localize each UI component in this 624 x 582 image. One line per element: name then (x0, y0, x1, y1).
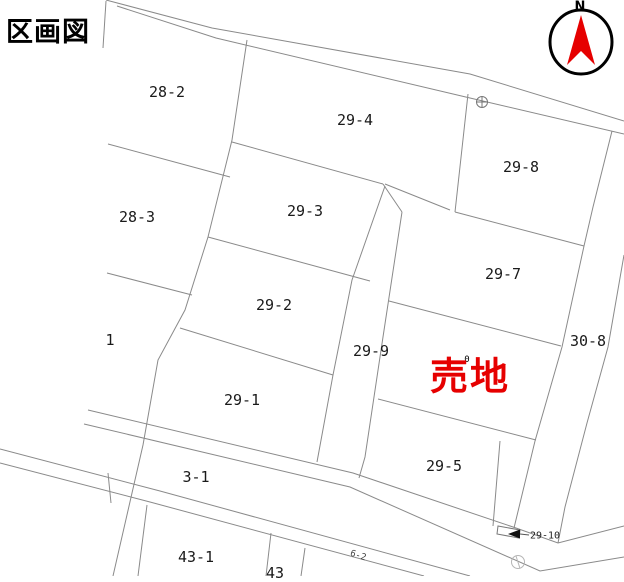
lot-label-29-1: 29-1 (224, 391, 260, 409)
lot-divider-28-2-28-3 (108, 144, 230, 177)
lot-divider-29-4-29-3 (232, 142, 383, 184)
bottom-road (0, 449, 470, 576)
lot-29-8-west-edge (455, 94, 468, 212)
lot-label-43-1: 43-1 (178, 548, 214, 566)
utility-circle-icon (512, 556, 525, 569)
for-sale-label: 売地 (430, 346, 510, 401)
lot-label-28-3: 28-3 (119, 208, 155, 226)
compass-needle-icon (567, 15, 595, 65)
lot-label-43: 43 (266, 564, 284, 582)
lot-label-28-2: 28-2 (149, 83, 185, 101)
lot-label-30-8: 30-8 (570, 332, 606, 350)
annotation-29-10: 29-10 (530, 531, 560, 542)
lot-label-29-9: 29-9 (353, 342, 389, 360)
lot-43-1-west-edge (138, 505, 147, 576)
lot-label-29-4: 29-4 (337, 111, 373, 129)
block-boundary-west (113, 40, 247, 576)
benchmark-cross-icon (477, 97, 488, 108)
compass (550, 10, 612, 74)
lot-label-1: 1 (105, 331, 114, 349)
lot-divider-29-3-29-2 (208, 237, 370, 281)
strip-30-8-west-edge (514, 131, 612, 528)
lot-label-29-5: 29-5 (426, 457, 462, 475)
lot-label-3-1: 3-1 (182, 468, 209, 486)
column-top-connector (385, 184, 450, 210)
lot-divider-28-3-1 (107, 273, 192, 295)
lot-divider-29-8-29-7 (455, 212, 584, 246)
strip-30-8-east-edge (558, 255, 624, 543)
lot-43-east-edge (301, 548, 305, 576)
lot-map-canvas (0, 0, 624, 576)
lot-29-5-east-edge (493, 441, 500, 526)
lot-divider-sale-29-5 (378, 399, 536, 440)
lot-label-29-3: 29-3 (287, 202, 323, 220)
compass-north-label: N (575, 0, 586, 15)
corner-notch-29-4 (383, 184, 402, 212)
lot-map-page: { "title": "区画図", "compass": { "north_la… (0, 0, 624, 576)
lot-label-29-8: 29-8 (503, 158, 539, 176)
lot-divider-29-2-29-1 (180, 328, 333, 375)
lot-label-29-2: 29-2 (256, 296, 292, 314)
page-title: 区画図 (6, 10, 90, 49)
lot-divider-29-7-sale (389, 301, 561, 346)
lot-label-29-7: 29-7 (485, 265, 521, 283)
lower-main-road (84, 410, 624, 571)
strip-29-9-west-edge (317, 186, 385, 462)
